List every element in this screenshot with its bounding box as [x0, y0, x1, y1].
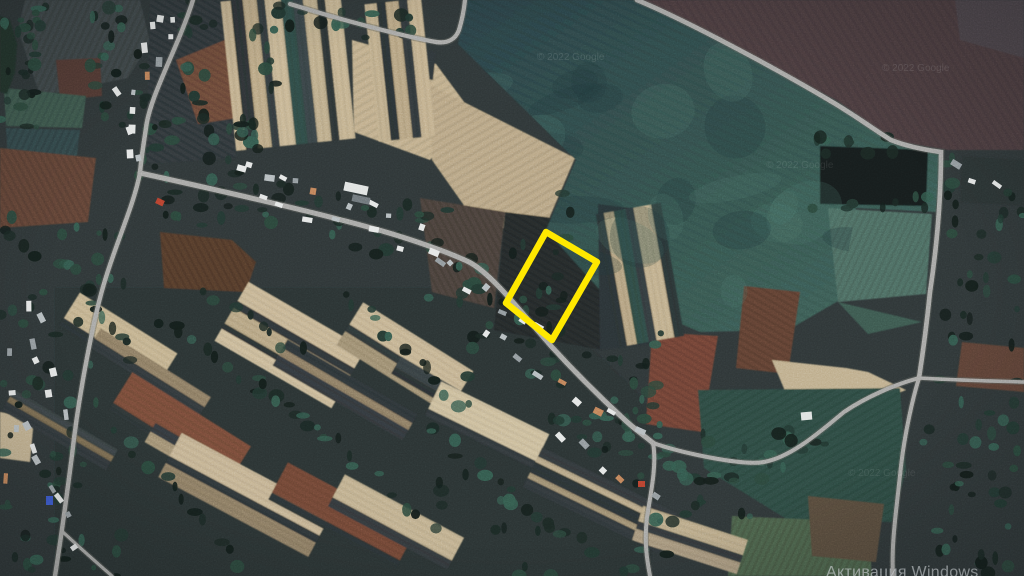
vignette-overlay [0, 0, 1024, 576]
satellite-map-view[interactable]: © 2022 Google © 2022 Google © 2022 Googl… [0, 0, 1024, 576]
satellite-map[interactable]: © 2022 Google © 2022 Google © 2022 Googl… [0, 0, 1024, 576]
